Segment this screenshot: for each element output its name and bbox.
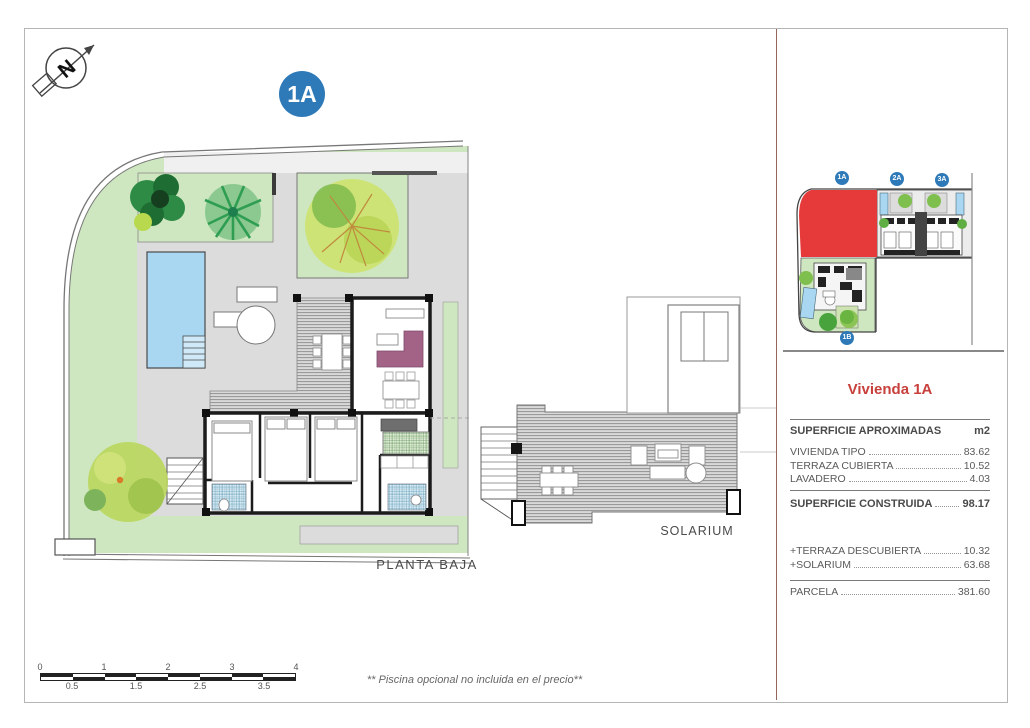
- svg-text:N: N: [54, 55, 80, 82]
- table-header-unit: m2: [974, 425, 990, 437]
- row-value: 4.03: [970, 473, 990, 487]
- table-row: LAVADERO 4.03: [790, 473, 990, 487]
- site-badge-1a: 1A: [835, 171, 849, 185]
- site-badge-3a: 3A: [935, 173, 949, 187]
- scale-bottom-labels: 0.5 1.5 2.5 3.5: [40, 681, 296, 692]
- dot-leader: [869, 454, 961, 455]
- table-row: VIVIENDA TIPO 83.62: [790, 446, 990, 460]
- panel-divider: [776, 29, 777, 700]
- dining-set: [383, 372, 419, 408]
- wall-stub: [372, 171, 437, 175]
- row-value: 10.32: [964, 545, 990, 559]
- row-label: VIVIENDA TIPO: [790, 446, 866, 460]
- table-row: +TERRAZA DESCUBIERTA 10.32: [790, 545, 990, 559]
- dot-leader: [841, 594, 955, 595]
- plot-1a-highlight: [799, 190, 877, 257]
- table-spacer: [790, 511, 990, 545]
- exterior-stairs: [167, 458, 203, 504]
- deck-pillar: [511, 443, 522, 454]
- scale-tick: 1: [101, 662, 106, 672]
- plan-sheet: N: [0, 0, 1030, 728]
- row-label: LAVADERO: [790, 473, 846, 487]
- scale-tick: 2.5: [194, 681, 207, 691]
- table-header-label: SUPERFICIE APROXIMADAS: [790, 425, 941, 437]
- row-label: SUPERFICIE CONSTRUIDA: [790, 498, 932, 512]
- surface-area-table: SUPERFICIE APROXIMADAS m2 VIVIENDA TIPO …: [790, 412, 990, 600]
- plan-number-badge: 1A: [279, 71, 325, 117]
- scale-tick: 3.5: [258, 681, 271, 691]
- planter-strip: [443, 302, 458, 468]
- row-label: TERRAZA CUBIERTA: [790, 460, 893, 474]
- table-parcel-row: PARCELA 381.60: [790, 586, 990, 600]
- table-total-row: SUPERFICIE CONSTRUIDA 98.17: [790, 498, 990, 512]
- deck-doorjamb: [727, 490, 740, 514]
- site-badge-1b: 1B: [840, 331, 854, 345]
- row-value: 381.60: [958, 586, 990, 600]
- scale-bar: 0 1 2 3 4 0.5 1.5 2.5 3.5: [40, 662, 296, 692]
- site-map-drawing: [780, 160, 1008, 360]
- table-header: SUPERFICIE APROXIMADAS m2: [790, 425, 990, 437]
- outdoor-dining-set: [313, 334, 351, 370]
- floor-plan-label: PLANTA BAJA: [352, 557, 502, 572]
- north-arrow-icon: N: [33, 45, 94, 96]
- row-value: 83.62: [964, 446, 990, 460]
- garden-path-bottom: [300, 526, 458, 544]
- deck-doorjamb: [512, 501, 525, 525]
- bedroom-beds: [212, 417, 357, 481]
- row-value: 98.17: [962, 498, 990, 512]
- table-rule: [790, 580, 990, 581]
- reference-lines: [740, 408, 776, 452]
- solarium-drawing: [481, 297, 776, 525]
- row-value: 63.68: [964, 559, 990, 573]
- palm-tree: [205, 184, 261, 240]
- scale-tick: 0: [37, 662, 42, 672]
- scale-tick: 4: [293, 662, 298, 672]
- panel-title: Vivienda 1A: [788, 381, 992, 398]
- dot-leader: [854, 567, 961, 568]
- scale-bar-strip: [40, 673, 296, 681]
- pool-disclaimer: ** Piscina opcional no incluida en el pr…: [352, 674, 597, 686]
- dot-leader: [849, 481, 967, 482]
- solarium-roof-box: [627, 297, 740, 413]
- dot-leader: [935, 506, 959, 507]
- swimming-pool: [147, 252, 205, 368]
- table-row: TERRAZA CUBIERTA 10.52: [790, 460, 990, 474]
- dot-leader: [924, 553, 961, 554]
- scale-tick: 1.5: [130, 681, 143, 691]
- entrance-gate: [55, 539, 95, 555]
- table-rule: [790, 490, 990, 491]
- site-badge-2a: 2A: [890, 172, 904, 186]
- floor-plan-drawing: N: [24, 28, 777, 701]
- table-rule: [790, 419, 990, 420]
- dot-leader: [896, 468, 960, 469]
- solarium-label: SOLARIUM: [622, 524, 772, 538]
- row-value: 10.52: [964, 460, 990, 474]
- tree-large: [305, 179, 399, 273]
- row-label: +SOLARIUM: [790, 559, 851, 573]
- scale-tick: 2: [165, 662, 170, 672]
- scale-tick: 0.5: [66, 681, 79, 691]
- row-label: +TERRAZA DESCUBIERTA: [790, 545, 921, 559]
- scale-tick: 3: [229, 662, 234, 672]
- table-row: +SOLARIUM 63.68: [790, 559, 990, 573]
- scale-top-labels: 0 1 2 3 4: [40, 662, 296, 673]
- wall-stub: [272, 173, 276, 195]
- row-label: PARCELA: [790, 586, 838, 600]
